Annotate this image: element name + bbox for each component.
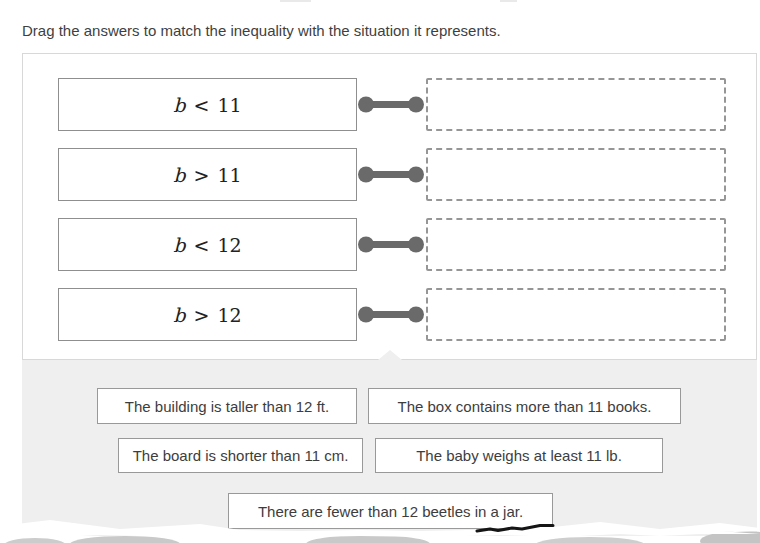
inequality-value: 12	[217, 234, 241, 256]
match-connector-icon	[353, 78, 433, 131]
inequality-operator: <	[194, 94, 210, 116]
answer-chip[interactable]: The board is shorter than 11 cm.	[118, 438, 363, 473]
drop-zone[interactable]	[426, 288, 726, 341]
answer-chip[interactable]: The box contains more than 11 books.	[368, 388, 681, 424]
tray-notch-icon	[378, 350, 402, 360]
inequality-operator: >	[194, 164, 210, 186]
match-row: b < 12	[23, 218, 756, 271]
drop-zone[interactable]	[426, 218, 726, 271]
match-row: b > 11	[23, 148, 756, 201]
match-row: b < 11	[23, 78, 756, 131]
match-row: b > 12	[23, 288, 756, 341]
inequality-operator: <	[194, 234, 210, 256]
inequality-variable: b	[173, 164, 185, 186]
drop-zone[interactable]	[426, 78, 726, 131]
inequality-box: b < 12	[58, 218, 357, 271]
inequality-value: 11	[217, 94, 241, 116]
match-connector-icon	[353, 218, 433, 271]
instruction-text: Drag the answers to match the inequality…	[22, 22, 501, 39]
inequality-operator: >	[194, 304, 210, 326]
page-top-artifact	[280, 0, 311, 2]
inequality-variable: b	[173, 304, 185, 326]
answer-chip[interactable]: The baby weighs at least 11 lb.	[375, 438, 663, 473]
page-top-artifact	[500, 0, 517, 2]
torn-paper-edge	[0, 510, 760, 543]
matching-question-card: b < 11 b > 11 b < 12	[22, 53, 757, 360]
answer-chip[interactable]: The building is taller than 12 ft.	[97, 388, 357, 424]
inequality-box: b > 11	[58, 148, 357, 201]
inequality-box: b < 11	[58, 78, 357, 131]
inequality-value: 11	[217, 164, 241, 186]
inequality-value: 12	[217, 304, 241, 326]
match-connector-icon	[353, 288, 433, 341]
inequality-variable: b	[173, 234, 185, 256]
inequality-variable: b	[173, 94, 185, 116]
match-connector-icon	[353, 148, 433, 201]
inequality-box: b > 12	[58, 288, 357, 341]
drop-zone[interactable]	[426, 148, 726, 201]
